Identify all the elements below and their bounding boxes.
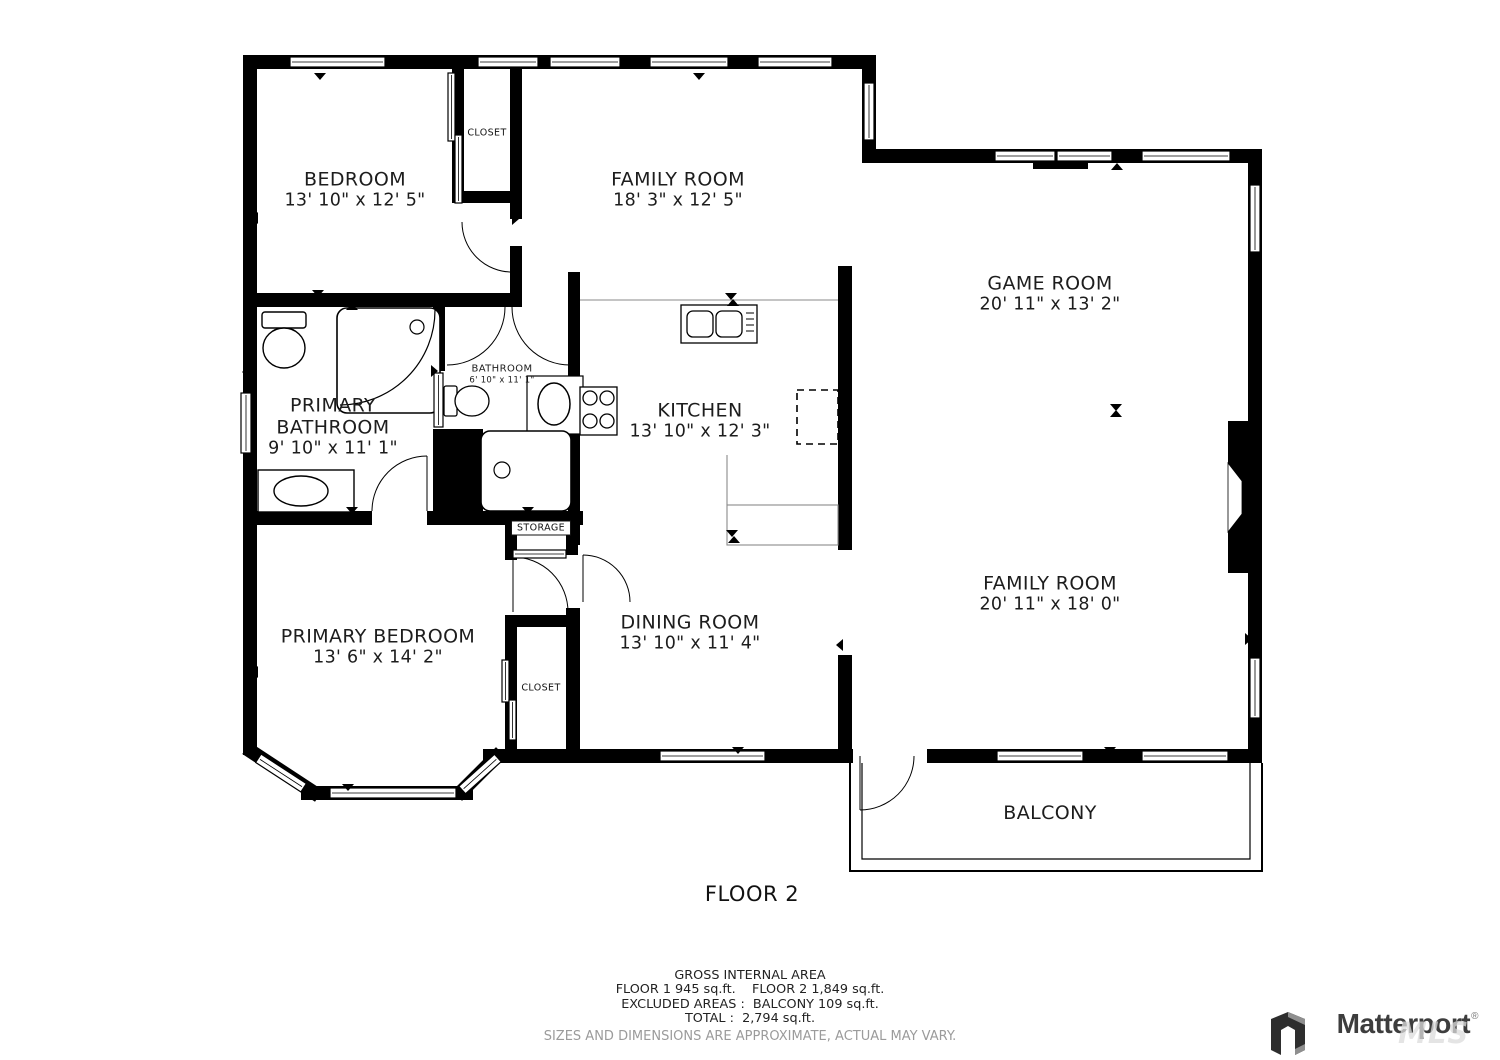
area-summary-total: TOTAL : 2,794 sq.ft. — [0, 1012, 1500, 1026]
room-dims: 13' 10" x 12' 5" — [284, 191, 425, 212]
direction-marker-icon — [728, 536, 740, 543]
area-summary: GROSS INTERNAL AREA FLOOR 1 945 sq.ft. F… — [0, 969, 1500, 1044]
shower-icon — [481, 431, 571, 511]
direction-marker-icon — [1111, 163, 1123, 170]
toilet-icon — [262, 312, 306, 368]
disclaimer-text: SIZES AND DIMENSIONS ARE APPROXIMATE, AC… — [0, 1030, 1500, 1044]
room-label-bathroom: BATHROOM 6' 10" x 11' 1" — [469, 364, 534, 387]
room-dims: 18' 3" x 12' 5" — [611, 191, 745, 212]
room-name: PRIMARY — [268, 395, 398, 417]
direction-marker-icon — [836, 639, 843, 651]
room-name: DINING ROOM — [619, 612, 760, 634]
room-name: KITCHEN — [629, 400, 770, 422]
storage-label: STORAGE — [511, 521, 571, 536]
room-dims: 13' 10" x 12' 3" — [629, 422, 770, 443]
registered-mark-icon: ® — [1471, 1011, 1478, 1022]
room-dims: 20' 11" x 18' 0" — [979, 595, 1120, 616]
room-dims: 9' 10" x 11' 1" — [268, 439, 398, 460]
room-dims: 6' 10" x 11' 1" — [469, 376, 534, 387]
room-name: GAME ROOM — [979, 273, 1120, 295]
area-summary-excluded: EXCLUDED AREAS : BALCONY 109 sq.ft. — [0, 998, 1500, 1012]
toilet-2-icon — [444, 386, 489, 416]
room-label-family-room-bottom: FAMILY ROOM 20' 11" x 18' 0" — [979, 573, 1120, 616]
room-name: FAMILY ROOM — [979, 573, 1120, 595]
room-label-dining-room: DINING ROOM 13' 10" x 11' 4" — [619, 612, 760, 655]
room-label-primary-bedroom: PRIMARY BEDROOM 13' 6" x 14' 2" — [281, 626, 475, 669]
room-name: BATHROOM — [268, 417, 398, 439]
room-label-balcony: BALCONY — [1003, 802, 1096, 824]
balcony-door-opening — [853, 749, 927, 763]
floor-plan-page: BEDROOM 13' 10" x 12' 5" FAMILY ROOM 18'… — [0, 0, 1500, 1060]
direction-marker-icon — [314, 73, 326, 80]
direction-marker-icon — [1110, 404, 1122, 411]
direction-marker-icon — [725, 293, 737, 300]
room-label-primary-bathroom: PRIMARY BATHROOM 9' 10" x 11' 1" — [268, 395, 398, 460]
vanity-sink-icon — [258, 470, 354, 512]
bathroom-sink-icon — [527, 376, 583, 434]
direction-marker-icon — [1110, 410, 1122, 417]
room-name: BEDROOM — [284, 169, 425, 191]
mls-watermark: MLS — [1398, 1016, 1469, 1050]
room-dims: 13' 6" x 14' 2" — [281, 648, 475, 669]
room-dims: 13' 10" x 11' 4" — [619, 634, 760, 655]
room-name: PRIMARY BEDROOM — [281, 626, 475, 648]
floor-title: FLOOR 2 — [705, 882, 799, 906]
room-label-game-room: GAME ROOM 20' 11" x 13' 2" — [979, 273, 1120, 316]
room-label-kitchen: KITCHEN 13' 10" x 12' 3" — [629, 400, 770, 443]
stove-icon — [580, 387, 617, 435]
area-summary-title: GROSS INTERNAL AREA — [0, 969, 1500, 983]
area-summary-floors: FLOOR 1 945 sq.ft. FLOOR 2 1,849 sq.ft. — [0, 983, 1500, 997]
kitchen-sink-icon — [681, 305, 757, 343]
room-name: FAMILY ROOM — [611, 169, 745, 191]
room-label-bedroom: BEDROOM 13' 10" x 12' 5" — [284, 169, 425, 212]
room-name: BALCONY — [1003, 802, 1096, 824]
direction-marker-icon — [726, 530, 738, 537]
room-dims: 20' 11" x 13' 2" — [979, 295, 1120, 316]
closet-top-label: CLOSET — [467, 128, 506, 139]
refrigerator-icon — [797, 390, 838, 444]
room-label-family-room-top: FAMILY ROOM 18' 3" x 12' 5" — [611, 169, 745, 212]
direction-marker-icon — [693, 73, 705, 80]
closet-bottom-label: CLOSET — [521, 683, 560, 694]
room-name: BATHROOM — [469, 364, 534, 376]
